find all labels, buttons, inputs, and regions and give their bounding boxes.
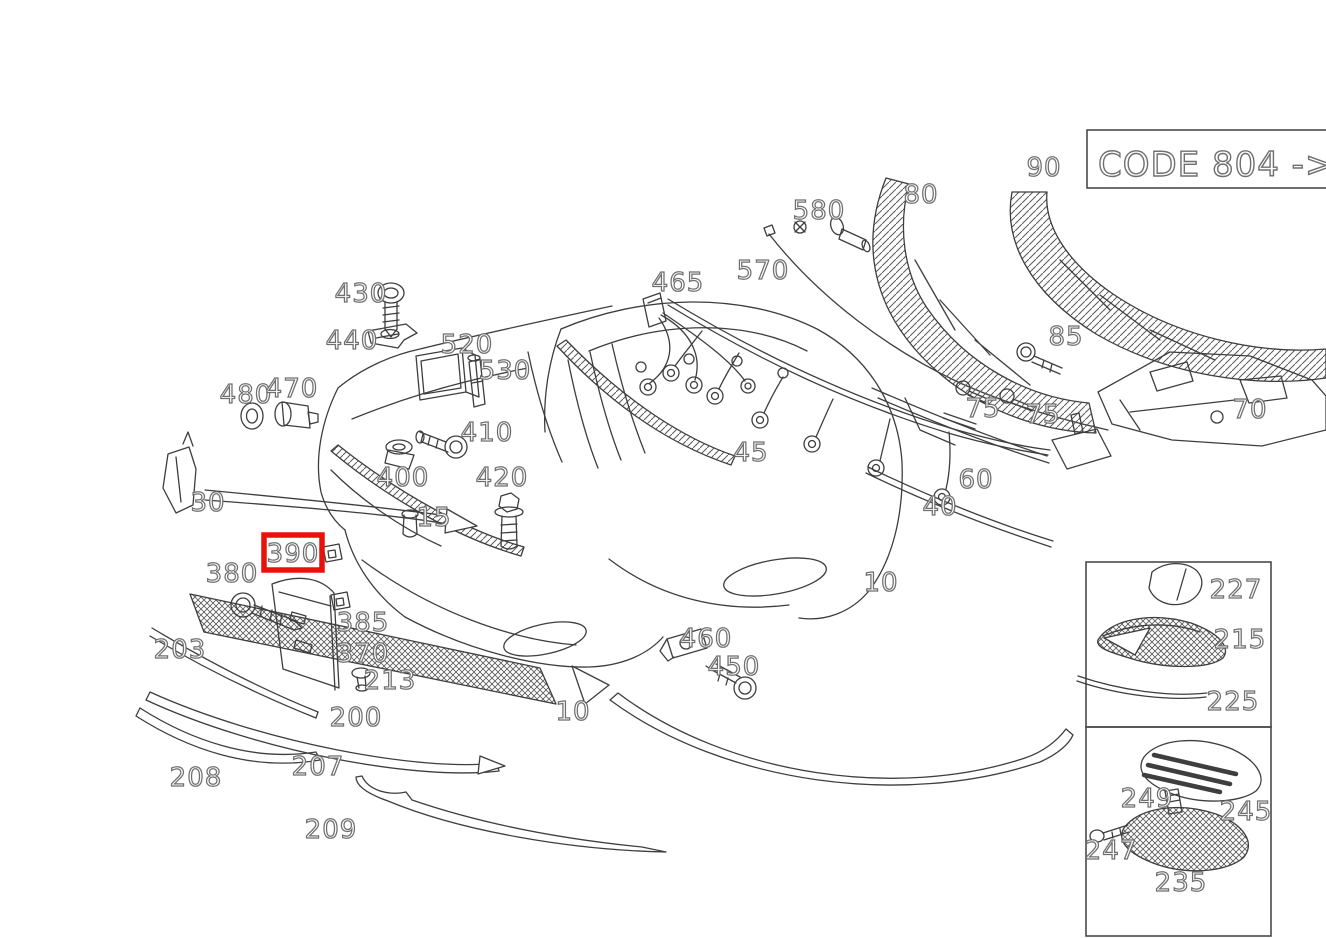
cover-cap-227-drawing [1149,564,1202,605]
part-label-400[interactable]: 400 [377,463,430,493]
part-label-370[interactable]: 370 [337,639,390,669]
part-label-60[interactable]: 60 [958,465,993,495]
part-label-235[interactable]: 235 [1155,868,1208,898]
clip-390-drawing [323,544,342,562]
part-label-420[interactable]: 420 [476,463,529,493]
exploded-parts-diagram: CODE 804 -> 430 440 520 530 480 470 410 … [0,0,1326,938]
part-label-85[interactable]: 85 [1048,322,1083,352]
lower-strip-arrow-drawing [572,666,1073,785]
part-label-580[interactable]: 580 [793,196,846,226]
parking-sensor-470-drawing [275,402,318,428]
parts-diagram-page: CODE 804 -> 430 440 520 530 480 470 410 … [0,0,1326,938]
part-label-390[interactable]: 390 [267,539,320,569]
part-label-213[interactable]: 213 [364,666,417,696]
part-label-465[interactable]: 465 [652,268,705,298]
bolt-410-drawing [416,431,467,458]
part-label-380[interactable]: 380 [206,559,259,589]
part-label-470[interactable]: 470 [266,374,319,404]
part-label-480[interactable]: 480 [220,380,273,410]
part-label-10-front[interactable]: 10 [555,697,590,727]
part-label-209[interactable]: 209 [305,815,358,845]
part-label-249[interactable]: 249 [1121,784,1174,814]
part-label-247[interactable]: 247 [1085,836,1138,866]
part-label-207[interactable]: 207 [292,752,345,782]
wiring-harness-465-drawing [640,293,755,395]
fog-lamp-grille-215-drawing [1098,618,1226,667]
part-label-215[interactable]: 215 [1214,625,1267,655]
part-label-430[interactable]: 430 [335,279,388,309]
part-label-70[interactable]: 70 [1232,395,1267,425]
part-label-10-shell[interactable]: 10 [863,568,898,598]
part-label-75-left[interactable]: 75 [965,394,1000,424]
part-label-90[interactable]: 90 [1026,153,1061,183]
part-label-200[interactable]: 200 [330,703,383,733]
part-label-40[interactable]: 40 [922,492,957,522]
code-804-label: CODE 804 -> [1098,145,1326,185]
part-label-208[interactable]: 208 [170,763,223,793]
part-label-410[interactable]: 410 [461,418,514,448]
part-label-30[interactable]: 30 [190,488,225,518]
part-label-227[interactable]: 227 [1210,575,1263,605]
part-label-45[interactable]: 45 [733,438,768,468]
part-label-80[interactable]: 80 [903,180,938,210]
part-label-530[interactable]: 530 [479,356,532,386]
chrome-strip-225-drawing [1077,676,1207,698]
part-label-225[interactable]: 225 [1207,687,1260,717]
part-label-570[interactable]: 570 [737,256,790,286]
part-label-15[interactable]: 15 [416,503,451,533]
part-label-440[interactable]: 440 [326,326,379,356]
part-label-450[interactable]: 450 [708,652,761,682]
part-label-245[interactable]: 245 [1220,797,1273,827]
part-label-75-right[interactable]: 75 [1025,400,1060,430]
part-label-385[interactable]: 385 [337,608,390,638]
part-label-203[interactable]: 203 [154,635,207,665]
trim-strip-209-drawing [356,776,666,852]
part-label-460[interactable]: 460 [680,624,733,654]
